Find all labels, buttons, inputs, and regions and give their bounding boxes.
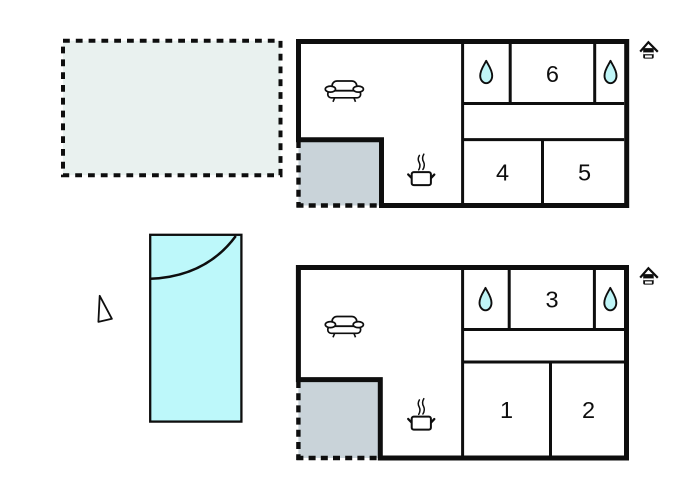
svg-text:2: 2 (582, 397, 595, 423)
svg-text:5: 5 (578, 160, 591, 186)
svg-text:1: 1 (500, 397, 513, 423)
svg-text:6: 6 (546, 61, 559, 87)
svg-text:3: 3 (545, 287, 558, 313)
svg-text:4: 4 (496, 160, 509, 186)
